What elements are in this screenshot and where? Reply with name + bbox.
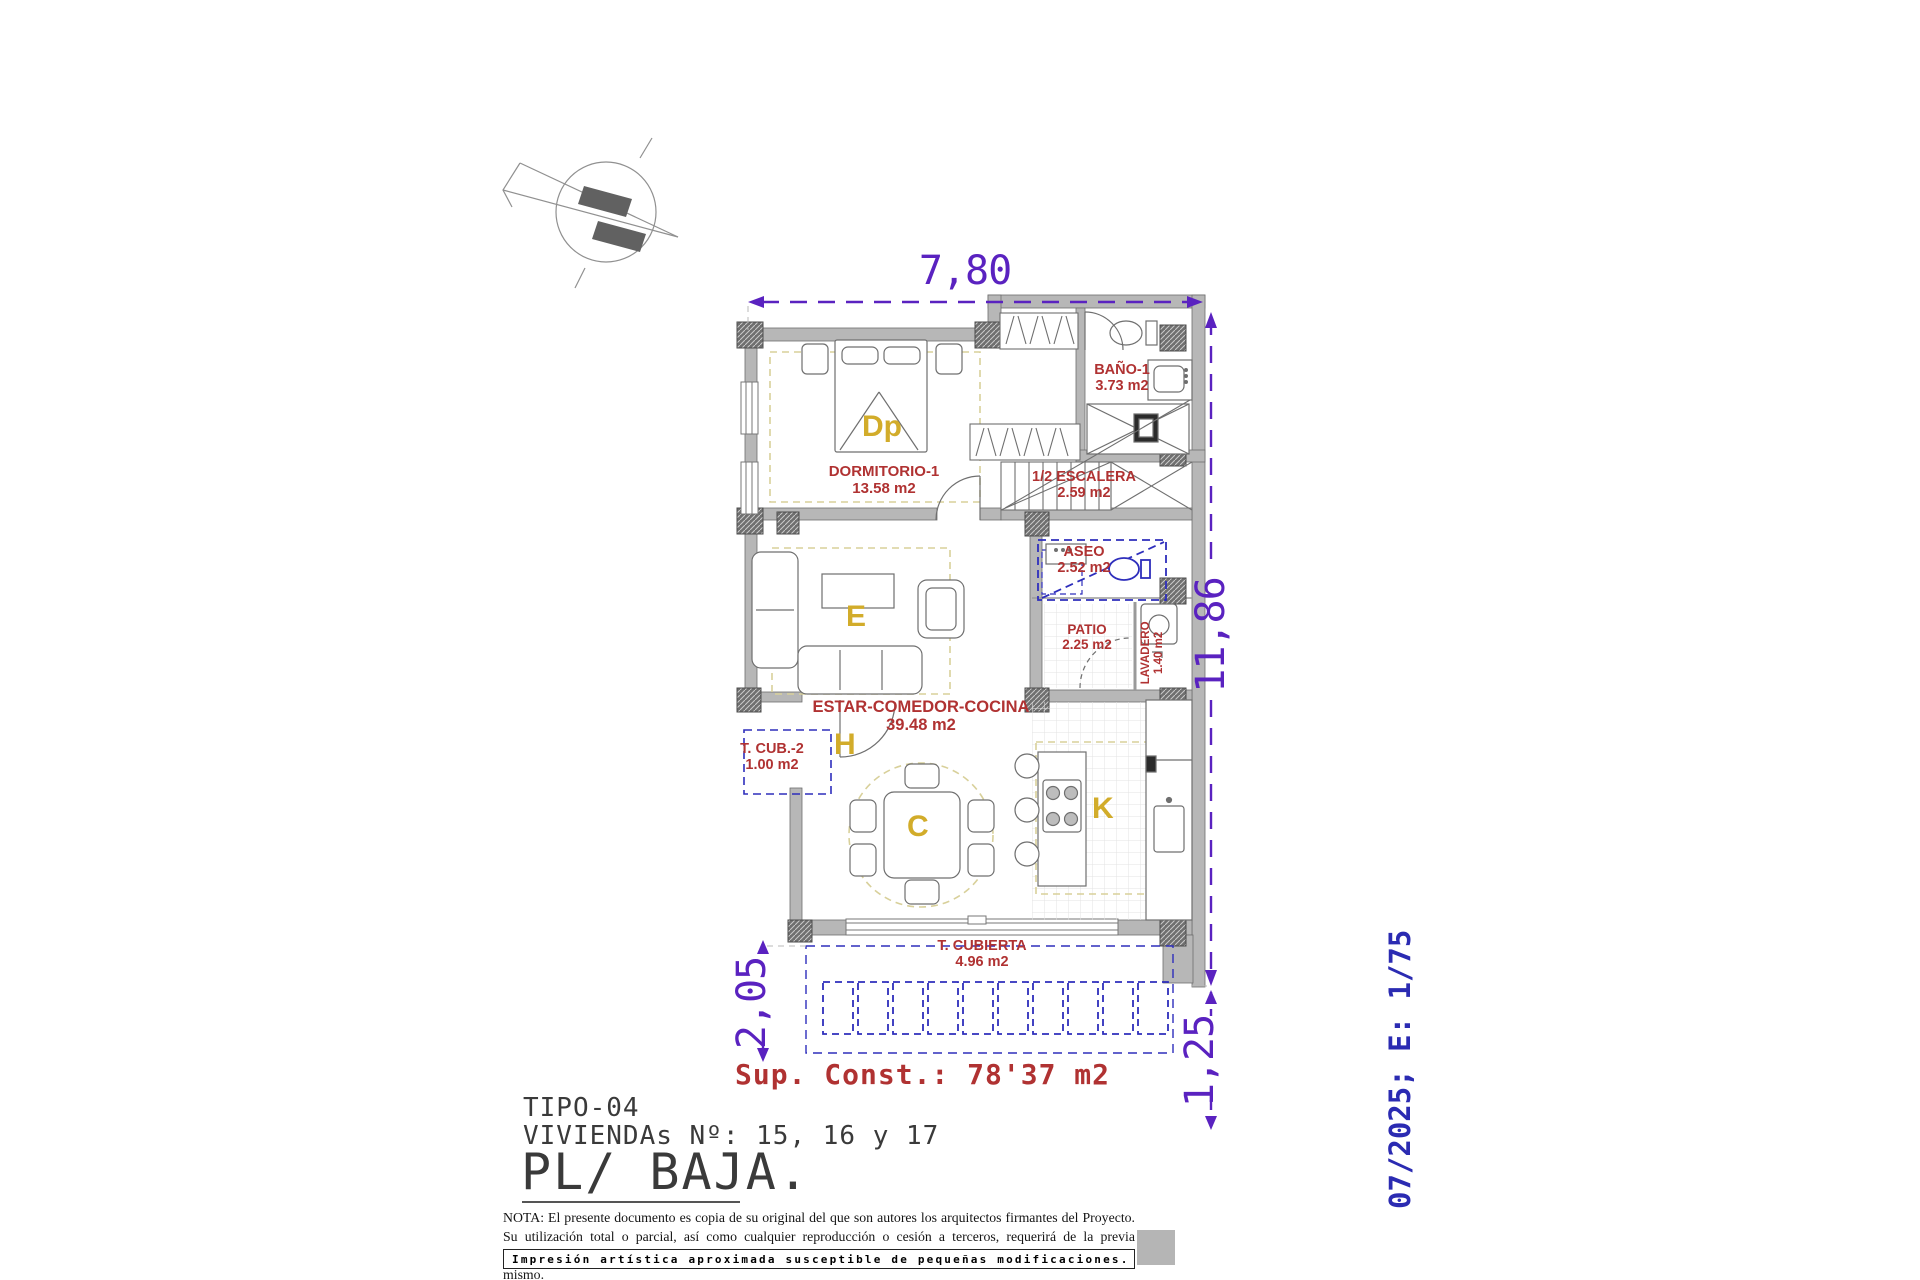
toilet-icon [1110, 321, 1142, 345]
floor-plan-sheet: 7,80 11,86 2,05 1,25 BAÑO-13.73 m2 DORMI… [0, 0, 1920, 1280]
sofa-icon [798, 646, 922, 694]
room-label-escalera: 1/2 ESCALERA2.59 m2 [1032, 469, 1136, 501]
room-letter-e: E [846, 602, 866, 632]
room-letter-h: H [834, 730, 856, 760]
stool-icon [1015, 798, 1039, 822]
stool-icon [1015, 842, 1039, 866]
dimension-bottom-right: 1,25 [1177, 1001, 1223, 1121]
dimension-right: 11,86 [1188, 575, 1234, 695]
room-letter-c: C [907, 812, 929, 842]
title-underline [522, 1201, 740, 1203]
room-label-dormitorio: DORMITORIO-113.58 m2 [829, 464, 940, 498]
room-label-bano: BAÑO-13.73 m2 [1094, 362, 1150, 394]
stool-icon [1015, 754, 1039, 778]
built-surface-text: Sup. Const.: 78'37 m2 [735, 1058, 1110, 1091]
kitchen-sink-icon [1154, 806, 1184, 852]
dimension-bottom-left: 2,05 [729, 943, 775, 1063]
dimension-top: 7,80 [903, 248, 1027, 294]
aseo-toilet-icon [1109, 558, 1139, 580]
room-label-patio: PATIO2.25 m2 [1062, 622, 1112, 652]
room-letter-k: K [1092, 794, 1114, 824]
room-label-tcubierta: T. CUBIERTA4.96 m2 [937, 938, 1026, 970]
room-label-lavadero: LAVADERO1.40 m2 [1140, 621, 1166, 684]
room-letter-dp: Dp [862, 412, 902, 442]
legal-note: NOTA: El presente documento es copia de … [503, 1208, 1135, 1280]
bedroom-door-arc [936, 476, 980, 520]
room-label-tcub2: T. CUB.-21.00 m2 [740, 741, 804, 773]
title-tipo: TIPO-04 [523, 1093, 640, 1123]
corner-gray-block [1137, 1230, 1175, 1265]
footer-disclaimer: Impresión artística aproximada susceptib… [503, 1249, 1135, 1269]
title-planta: PL/ BAJA. [521, 1143, 810, 1201]
revision-scale-text: 07/2025; E: 1/75 [1383, 945, 1417, 1209]
room-label-aseo: ASEO2.52 m2 [1057, 544, 1110, 576]
north-compass-icon [503, 138, 678, 288]
